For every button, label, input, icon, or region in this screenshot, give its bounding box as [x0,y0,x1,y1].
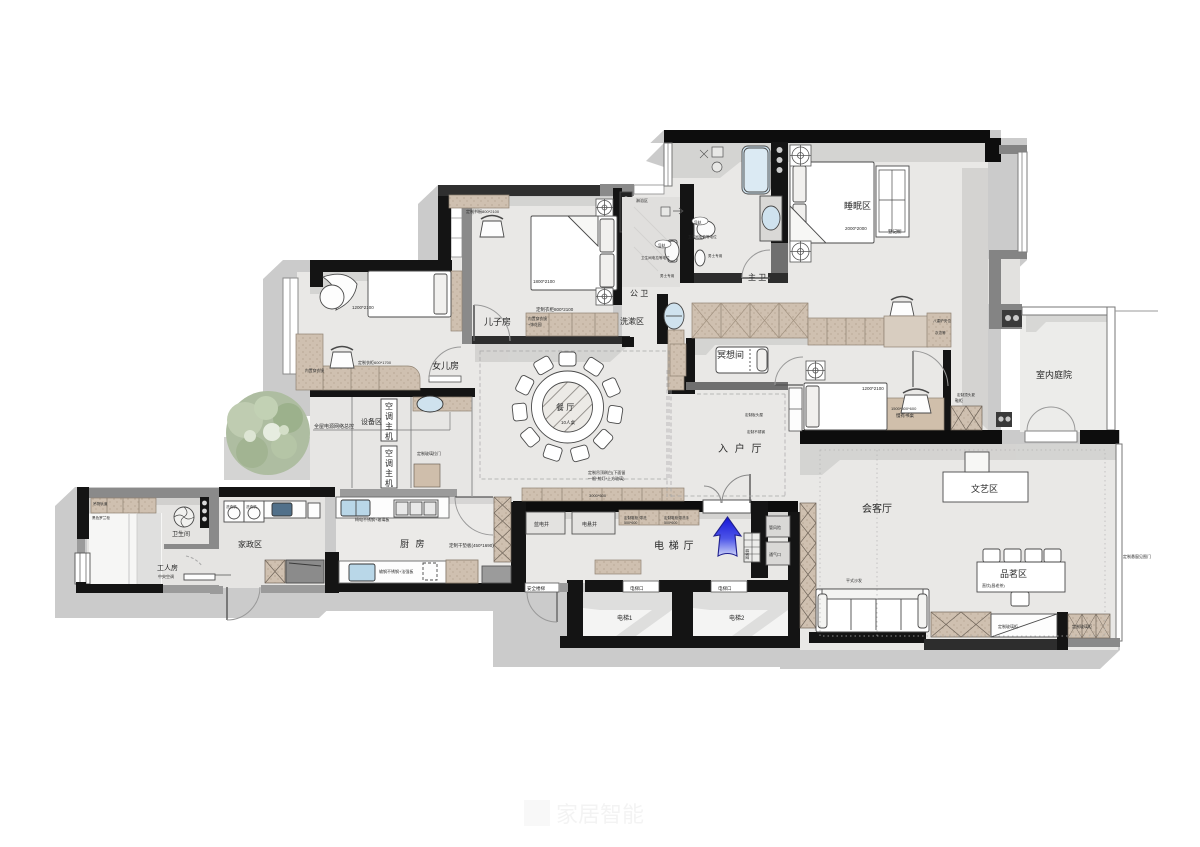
svg-text:空: 空 [385,401,393,411]
svg-text:慢有书桌: 慢有书桌 [896,412,914,419]
svg-text:内置穿衣镜: 内置穿衣镜 [528,316,547,321]
svg-text:电悬井: 电悬井 [582,521,597,528]
svg-text:女儿房: 女儿房 [432,360,459,371]
svg-text:淋浴区: 淋浴区 [636,197,648,203]
svg-text:洗衣机: 洗衣机 [246,504,257,509]
svg-text:定制鞋柜 带洗: 定制鞋柜 带洗 [624,515,647,520]
svg-text:楼梯屋: 楼梯屋 [745,549,750,560]
svg-text:卫生间: 卫生间 [172,530,190,538]
svg-text:1500*500*600: 1500*500*600 [891,406,917,411]
svg-text:定制吊顶刷白(下面留: 定制吊顶刷白(下面留 [588,469,625,475]
svg-text:品茗区: 品茗区 [1000,569,1027,579]
svg-text:500*600: 500*600 [664,521,677,525]
svg-text:椅电不锈钢+玻璃板: 椅电不锈钢+玻璃板 [355,516,389,522]
svg-text:定制玻璃拉门: 定制玻璃拉门 [417,450,441,456]
svg-text:空: 空 [385,448,393,458]
svg-text:1200*2100: 1200*2100 [352,305,374,310]
svg-text:调: 调 [385,412,393,421]
svg-text:鞋柜: 鞋柜 [955,397,963,403]
svg-text:通气口: 通气口 [769,551,781,557]
svg-text:文艺区: 文艺区 [971,483,998,494]
svg-text:设备区: 设备区 [361,417,382,426]
svg-text:男士专用: 男士专用 [660,273,675,278]
svg-text:3000*600: 3000*600 [589,493,607,498]
svg-text:厨 房: 厨 房 [400,538,427,549]
svg-text:主: 主 [385,468,393,478]
svg-text:定制玻璃柜: 定制玻璃柜 [998,623,1018,629]
svg-text:平式沙发: 平式沙发 [846,577,862,583]
svg-text:调: 调 [385,459,393,468]
svg-text:睡眠区: 睡眠区 [844,200,871,211]
svg-text:10人桌: 10人桌 [561,419,576,426]
svg-text:内置穿衣镜: 内置穿衣镜 [305,368,324,373]
svg-text:主 卫: 主 卫 [748,272,766,282]
svg-text:500*600: 500*600 [624,521,637,525]
svg-text:定制玻璃柜: 定制玻璃柜 [1072,623,1092,629]
svg-text:电梯1: 电梯1 [617,614,633,622]
svg-text:卫生间电拉等电位: 卫生间电拉等电位 [688,234,717,239]
svg-text:机: 机 [385,478,393,488]
svg-text:1800*2100: 1800*2100 [533,279,555,284]
svg-text:中央空调: 中央空调 [158,573,174,579]
svg-text:电 梯 厅: 电 梯 厅 [654,539,695,552]
svg-text:2000*2000: 2000*2000 [845,226,867,231]
svg-text:定制顶头夏: 定制顶头夏 [957,392,975,397]
svg-text:输钢不锈钢+法强板: 输钢不锈钢+法强板 [379,568,413,574]
svg-text:主: 主 [385,421,393,431]
svg-text:定制书橱800*2100: 定制书橱800*2100 [466,208,500,214]
svg-text:管风险: 管风险 [769,524,781,530]
svg-text:电梯口: 电梯口 [718,585,732,592]
svg-text:导轨: 导轨 [658,243,666,248]
svg-text:定制不锈钢: 定制不锈钢 [747,429,765,434]
svg-text:安全楼梯: 安全楼梯 [527,585,545,592]
svg-text:灰念等: 灰念等 [935,330,946,335]
svg-text:全屋电源网络总控: 全屋电源网络总控 [314,423,354,430]
svg-text:电梯2: 电梯2 [729,614,745,622]
svg-text:洗衣机: 洗衣机 [226,504,237,509]
svg-text:直饮(昌老茶): 直饮(昌老茶) [982,582,1005,588]
svg-text:一根*射灯*上方玻璃): 一根*射灯*上方玻璃) [588,475,625,481]
svg-text:冥想间: 冥想间 [717,349,744,360]
svg-text:工人房: 工人房 [157,563,178,572]
svg-text:+饰花园: +饰花园 [528,322,542,327]
svg-text:八重炉安位: 八重炉安位 [933,318,951,323]
svg-text:餐 厅: 餐 厅 [556,403,574,412]
svg-text:定制干垫板(450*1690): 定制干垫板(450*1690) [449,542,494,549]
svg-text:定制衣柜800*2100: 定制衣柜800*2100 [536,306,574,313]
svg-text:室内庭院: 室内庭院 [1036,369,1072,380]
svg-text:定制悬窗见图门: 定制悬窗见图门 [1123,553,1151,559]
svg-text:定制鞋柜带洗手: 定制鞋柜带洗手 [664,515,690,520]
svg-text:电梯口: 电梯口 [630,585,644,592]
svg-text:定制板头屋: 定制板头屋 [745,412,763,417]
svg-text:入 户 厅: 入 户 厅 [718,442,764,455]
svg-text:蓝电井: 蓝电井 [534,521,549,528]
svg-text:黑色罗兰柜: 黑色罗兰柜 [92,515,110,520]
svg-text:定制衣柜600*1700: 定制衣柜600*1700 [358,359,392,365]
svg-text:儿子房: 儿子房 [484,316,511,327]
svg-text:会客厅: 会客厅 [862,502,892,515]
svg-text:卫生间电拉等电位: 卫生间电拉等电位 [641,255,670,260]
svg-text:吊物轨道: 吊物轨道 [93,501,108,506]
svg-text:洗漱区: 洗漱区 [620,316,644,326]
svg-text:1200*2100: 1200*2100 [862,386,884,391]
svg-text:机: 机 [385,431,393,441]
svg-text:公 卫: 公 卫 [630,289,648,298]
svg-text:登记橱: 登记橱 [888,228,902,235]
svg-text:男士专用: 男士专用 [708,253,723,258]
svg-text:家居智能: 家居智能 [556,802,644,827]
svg-text:家政区: 家政区 [238,539,262,549]
svg-text:导轨: 导轨 [694,220,702,225]
